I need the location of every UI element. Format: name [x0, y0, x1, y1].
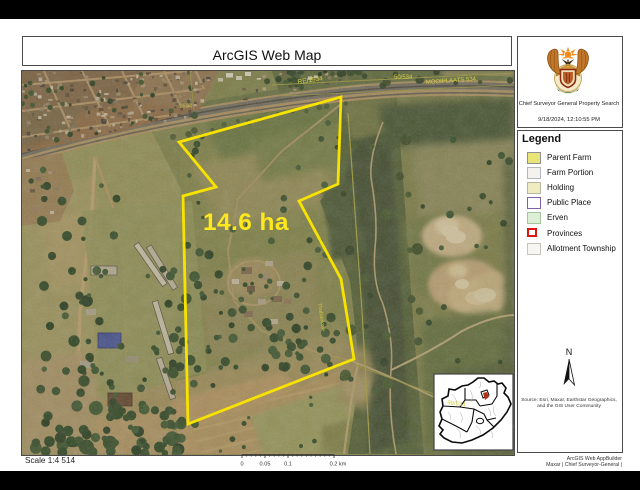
svg-text:0.05: 0.05: [260, 462, 271, 468]
svg-text:0: 0: [240, 462, 243, 468]
svg-text:0.2 km: 0.2 km: [330, 462, 347, 468]
svg-text:0.1: 0.1: [284, 462, 292, 468]
svg-text:50/534: 50/534: [394, 75, 413, 81]
svg-text:N: N: [566, 347, 573, 357]
svg-text:14.6 ha: 14.6 ha: [203, 209, 289, 236]
svg-text:1534: 1534: [179, 104, 193, 110]
